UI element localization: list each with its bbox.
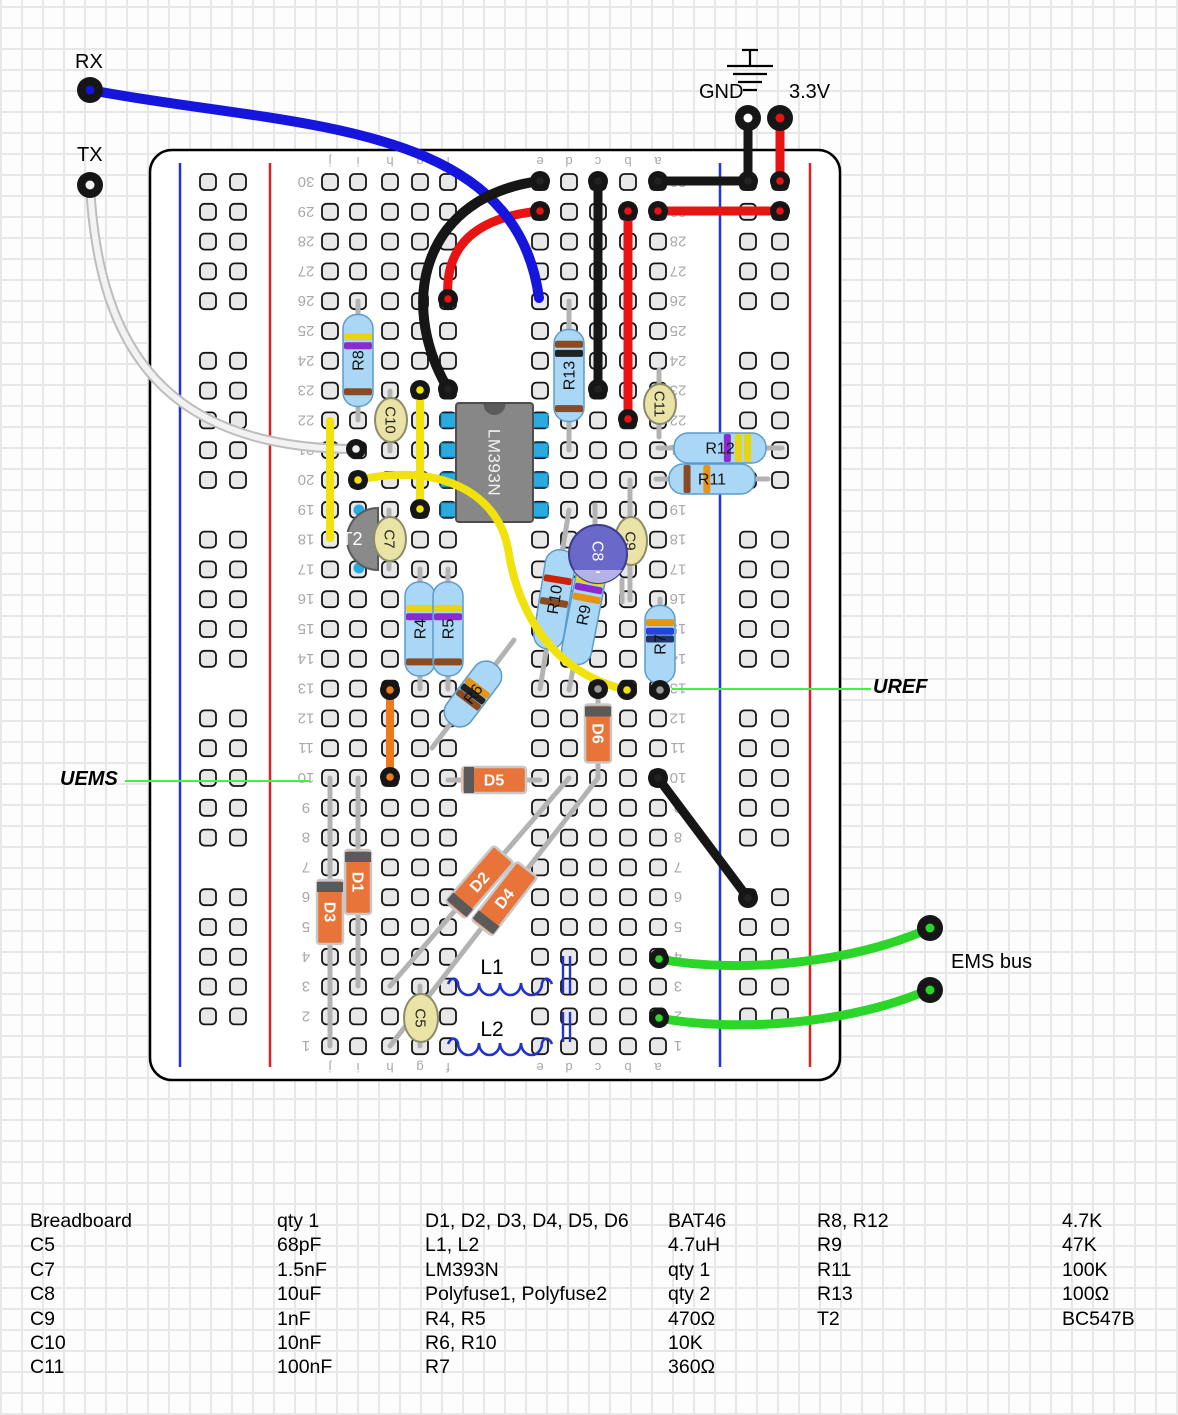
part-value: 10uF <box>277 1283 321 1306</box>
inductor-label: L1 <box>480 956 503 979</box>
svg-text:j: j <box>328 1060 332 1075</box>
svg-text:7: 7 <box>674 858 682 875</box>
svg-text:27: 27 <box>670 262 687 279</box>
svg-text:10: 10 <box>670 769 687 786</box>
part-name: R4, R5 <box>425 1308 486 1331</box>
svg-text:i: i <box>356 1060 359 1075</box>
capacitor-C5[interactable]: C5 <box>404 994 438 1042</box>
svg-text:5: 5 <box>302 918 310 935</box>
ems-terminal-1[interactable] <box>917 915 943 941</box>
part-value: 1.5nF <box>277 1259 327 1282</box>
svg-text:30: 30 <box>298 173 315 190</box>
resistor-label: R5 <box>441 619 458 640</box>
svg-text:11: 11 <box>670 739 686 756</box>
part-name: R11 <box>817 1259 851 1282</box>
svg-text:5: 5 <box>674 918 682 935</box>
svg-text:28: 28 <box>298 233 315 250</box>
svg-text:26: 26 <box>298 292 315 309</box>
svg-text:e: e <box>536 154 543 169</box>
inductor-label: L2 <box>480 1018 503 1041</box>
diode-D6[interactable]: D6 <box>585 705 611 763</box>
resistor-label: R12 <box>705 441 734 458</box>
svg-text:17: 17 <box>298 560 315 577</box>
part-value: 47K <box>1062 1234 1097 1257</box>
capacitor-label: C10 <box>382 406 399 434</box>
resistor-R5[interactable]: R5 <box>433 582 463 676</box>
svg-text:29: 29 <box>298 203 315 220</box>
part-value: BC547B <box>1062 1308 1135 1331</box>
breadboard-canvas: 1122334455667788991010111112121313141415… <box>0 0 1178 1415</box>
resistor-R7[interactable]: R7 <box>645 606 675 684</box>
tx-terminal[interactable] <box>77 172 103 198</box>
svg-text:a: a <box>654 1060 662 1075</box>
svg-text:18: 18 <box>298 531 315 548</box>
svg-text:6: 6 <box>674 888 682 905</box>
part-value: 470Ω <box>668 1308 715 1331</box>
part-value: 68pF <box>277 1234 321 1257</box>
resistor-R12[interactable]: R12 <box>674 433 766 463</box>
polarity-minus: - <box>596 563 601 579</box>
svg-text:12: 12 <box>298 709 315 726</box>
part-name: Breadboard <box>30 1210 132 1233</box>
svg-text:d: d <box>565 1060 572 1075</box>
svg-text:12: 12 <box>670 709 687 726</box>
svg-text:17: 17 <box>670 560 687 577</box>
part-name: D1, D2, D3, D4, D5, D6 <box>425 1210 629 1233</box>
svg-text:7: 7 <box>302 858 310 875</box>
svg-text:11: 11 <box>298 739 314 756</box>
capacitor-C7[interactable]: C7 <box>374 517 406 561</box>
resistor-R4[interactable]: R4 <box>405 582 435 676</box>
part-value: 10K <box>668 1332 703 1355</box>
resistor-label: R13 <box>562 361 579 390</box>
resistor-label: R4 <box>413 619 430 640</box>
svg-text:g: g <box>416 1060 423 1075</box>
part-name: LM393N <box>425 1259 499 1282</box>
part-name: R7 <box>425 1356 450 1379</box>
resistor-R11[interactable]: R11 <box>669 464 755 494</box>
part-value: 10nF <box>277 1332 321 1355</box>
svg-text:14: 14 <box>298 650 315 667</box>
svg-text:2: 2 <box>302 1007 310 1024</box>
svg-text:h: h <box>386 154 393 169</box>
v33-terminal[interactable] <box>767 105 793 131</box>
svg-text:8: 8 <box>302 829 310 846</box>
part-name: T2 <box>817 1308 840 1331</box>
transistor-label: T2 <box>341 529 362 549</box>
part-name: R6, R10 <box>425 1332 497 1355</box>
label-rx: RX <box>75 51 103 74</box>
ems-terminal-2[interactable] <box>917 977 943 1003</box>
part-value: 4.7uH <box>668 1234 720 1257</box>
rx-terminal[interactable] <box>77 77 103 103</box>
part-value: qty 2 <box>668 1283 710 1306</box>
capacitor-label: C8 <box>589 541 606 562</box>
part-name: R13 <box>817 1283 853 1306</box>
svg-text:15: 15 <box>298 620 315 637</box>
part-value: 100Ω <box>1062 1283 1109 1306</box>
capacitor-label: C7 <box>381 529 398 548</box>
part-value: qty 1 <box>277 1210 319 1233</box>
ic-lm393n[interactable]: LM393N <box>441 403 548 522</box>
svg-text:28: 28 <box>670 233 687 250</box>
diode-label: D3 <box>321 902 338 923</box>
label-tx: TX <box>77 144 103 167</box>
part-value: 4.7K <box>1062 1210 1102 1233</box>
part-name: C11 <box>30 1356 64 1379</box>
svg-text:i: i <box>356 154 359 169</box>
resistor-R13[interactable]: R13 <box>554 330 584 422</box>
svg-text:20: 20 <box>298 471 315 488</box>
resistor-label: R7 <box>653 634 670 655</box>
label-3v3: 3.3V <box>789 81 830 104</box>
part-value: 360Ω <box>668 1356 715 1379</box>
svg-text:c: c <box>594 1060 601 1075</box>
svg-text:22: 22 <box>298 411 315 428</box>
resistor-R8[interactable]: R8 <box>343 315 373 407</box>
resistor-label: R8 <box>351 350 368 371</box>
svg-text:13: 13 <box>298 680 315 697</box>
svg-text:c: c <box>594 154 601 169</box>
svg-text:f: f <box>446 1060 450 1075</box>
svg-text:j: j <box>328 154 332 169</box>
svg-text:27: 27 <box>298 262 315 279</box>
ic-label: LM393N <box>485 429 504 496</box>
svg-text:18: 18 <box>670 531 687 548</box>
svg-text:25: 25 <box>298 322 315 339</box>
svg-text:e: e <box>536 1060 543 1075</box>
capacitor-C8[interactable]: C8- <box>569 525 627 583</box>
part-value: BAT46 <box>668 1210 726 1233</box>
svg-text:h: h <box>386 1060 393 1075</box>
svg-text:26: 26 <box>670 292 687 309</box>
diode-label: D5 <box>484 773 505 790</box>
part-name: L1, L2 <box>425 1234 479 1257</box>
svg-text:19: 19 <box>670 501 687 518</box>
svg-text:3: 3 <box>674 978 682 995</box>
part-value: qty 1 <box>668 1259 710 1282</box>
svg-text:19: 19 <box>298 501 315 518</box>
resistor-label: R11 <box>698 472 726 489</box>
diode-D5[interactable]: D5 <box>462 767 526 793</box>
label-ems-bus: EMS bus <box>951 951 1032 974</box>
capacitor-label: C5 <box>412 1008 429 1027</box>
part-name: C10 <box>30 1332 66 1355</box>
part-name: C5 <box>30 1234 55 1257</box>
svg-text:1: 1 <box>674 1037 682 1054</box>
svg-text:23: 23 <box>298 382 315 399</box>
label-gnd: GND <box>699 81 743 104</box>
fritzing-breadboard-view: 1122334455667788991010111112121313141415… <box>0 0 1178 1415</box>
capacitor-C10[interactable]: C10 <box>375 398 407 442</box>
svg-text:24: 24 <box>670 352 687 369</box>
svg-text:25: 25 <box>670 322 687 339</box>
diode-D3[interactable]: D3 <box>317 880 343 944</box>
svg-text:8: 8 <box>674 829 682 846</box>
part-name: Polyfuse1, Polyfuse2 <box>425 1283 607 1306</box>
svg-text:10: 10 <box>298 769 315 786</box>
capacitor-C11[interactable]: C11 <box>644 384 676 424</box>
svg-text:9: 9 <box>302 799 310 816</box>
part-value: 1nF <box>277 1308 311 1331</box>
breadboard <box>150 150 840 1080</box>
svg-text:b: b <box>624 1060 631 1075</box>
svg-text:16: 16 <box>670 590 687 607</box>
part-value: 100nF <box>277 1356 332 1379</box>
svg-text:6: 6 <box>302 888 310 905</box>
part-name: C7 <box>30 1259 55 1282</box>
svg-text:4: 4 <box>302 948 310 965</box>
svg-text:d: d <box>565 154 572 169</box>
label-uems: UEMS <box>60 768 118 791</box>
label-uref: UREF <box>873 676 927 699</box>
diode-label: D6 <box>589 723 606 744</box>
part-name: C9 <box>30 1308 55 1331</box>
svg-text:a: a <box>654 154 662 169</box>
diode-D1[interactable]: D1 <box>345 850 371 914</box>
svg-text:1: 1 <box>302 1037 310 1054</box>
gnd-terminal[interactable] <box>735 105 761 131</box>
svg-text:24: 24 <box>298 352 315 369</box>
svg-text:3: 3 <box>302 978 310 995</box>
capacitor-label: C11 <box>651 391 668 417</box>
svg-text:16: 16 <box>298 590 315 607</box>
part-name: C8 <box>30 1283 55 1306</box>
diode-label: D1 <box>349 872 366 893</box>
part-value: 100K <box>1062 1259 1108 1282</box>
part-name: R8, R12 <box>817 1210 889 1233</box>
svg-text:b: b <box>624 154 631 169</box>
part-name: R9 <box>817 1234 842 1257</box>
